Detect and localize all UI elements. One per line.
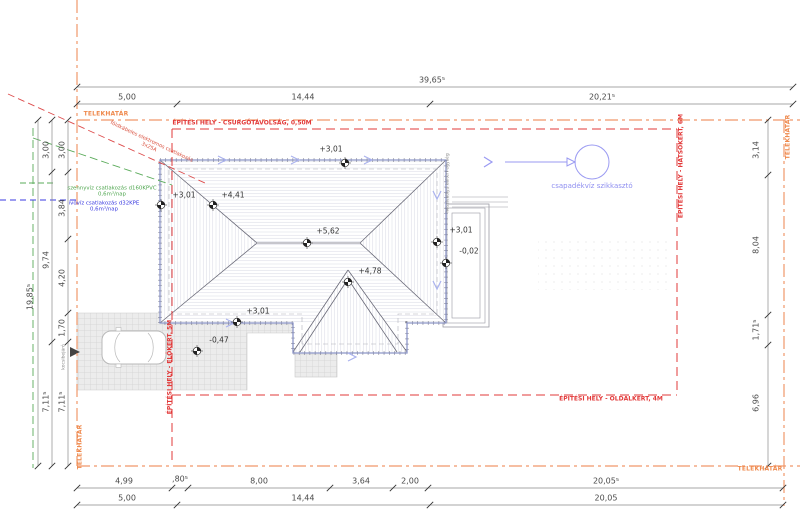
dim-bottom-u6: 20,05⁵ — [593, 476, 619, 485]
dim-bottom-u2: ,80⁵ — [172, 474, 188, 483]
soakaway-circle — [575, 145, 609, 179]
level-eave-left: +3,01 — [173, 192, 196, 201]
dim-top-2: 14,44 — [292, 92, 315, 101]
heat-pump-label: hőszivattyú kültéri egység — [445, 153, 450, 212]
level-eave-right: +3,01 — [450, 227, 473, 236]
terrace — [443, 204, 489, 327]
dim-right-1: 3,14 — [751, 141, 760, 159]
ground-texture — [538, 235, 668, 290]
dim-bottom-l2: 14,44 — [292, 493, 315, 502]
driveway-entry-label: kocsibejáró — [61, 344, 66, 369]
site-plan-canvas — [0, 0, 800, 513]
sewer-service-label: szennyvíz csatlakozás d160KPVC 0,6m³/nap — [67, 186, 156, 198]
dim-top-3: 20,21⁵ — [589, 92, 615, 101]
dim-left-i4: 1,70 — [57, 319, 66, 337]
level-eave-bottom: +3,01 — [247, 308, 270, 317]
level-eave-top: +3,01 — [320, 146, 343, 155]
dim-top-overall: 39,65⁵ — [419, 75, 445, 84]
envelope-label-left: ÉPÍTÉSI HELY - ELŐKERT, 5M — [168, 320, 175, 414]
dim-right-3: 1,71⁵ — [751, 319, 760, 340]
water-service-label: ivóvíz csatlakozás d32KPE 0,6m³/nap — [69, 201, 140, 213]
envelope-label-right: ÉPÍTÉSI HELY - HÁTSÓKERT, 6M — [679, 114, 686, 218]
level-driveway: -0,47 — [209, 337, 228, 346]
soakaway-label: csapadékvíz szikkasztó — [551, 182, 632, 190]
dim-bottom-u5: 2,00 — [401, 476, 419, 485]
site-plan: 39,65⁵ 5,00 14,44 20,21⁵ 4,99 ,80⁵ 8,00 … — [0, 0, 800, 513]
sewer-service-line — [20, 128, 172, 468]
car — [102, 328, 166, 368]
dim-right-2: 8,04 — [751, 236, 760, 254]
dim-top-1: 5,00 — [118, 92, 136, 101]
soakaway — [484, 145, 609, 179]
dim-left-i2: 3,84 — [57, 199, 66, 217]
level-ridge-west: +4,41 — [222, 192, 245, 201]
dim-bottom-u3: 8,00 — [250, 476, 268, 485]
water-label-line2: 0,6m³/nap — [69, 207, 140, 213]
level-ridge-main: +5,62 — [317, 228, 340, 237]
dim-right-4: 6,96 — [751, 394, 760, 412]
dim-bottom-l1: 5,00 — [118, 493, 136, 502]
level-terrace: -0,02 — [459, 248, 478, 257]
dim-left-i1: 3,00 — [57, 141, 66, 159]
dim-left-o2: 9,74 — [41, 251, 50, 269]
boundary-label-top: TELEKHATÁR — [84, 112, 129, 119]
dim-bottom-u1: 4,99 — [115, 476, 133, 485]
dim-bottom-l3: 20,05 — [595, 493, 618, 502]
dim-bottom-u4: 3,64 — [352, 476, 370, 485]
dim-left-overall: 19,85⁵ — [25, 284, 34, 310]
dim-left-i5: 7,11⁵ — [57, 391, 66, 412]
boundary-label-bottom-left: TELEKHATÁR — [78, 425, 85, 470]
boundary-label-bottom: TELEKHATÁR — [738, 467, 783, 474]
envelope-label-top: ÉPÍTÉSI HELY - CSURGÓTÁVOLSÁG, 0,50M — [172, 121, 311, 128]
boundary-label-right: TELEKHATÁR — [786, 115, 793, 160]
envelope-label-bottom: ÉPÍTÉSI HELY - OLDALKERT, 4M — [559, 397, 663, 404]
level-ridge-south: +4,78 — [359, 268, 382, 277]
sewer-label-line2: 0,6m³/nap — [67, 192, 156, 198]
dim-left-o3: 7,11⁵ — [41, 391, 50, 412]
dim-left-o1: 3,00 — [41, 141, 50, 159]
dim-left-i3: 4,20 — [57, 269, 66, 287]
